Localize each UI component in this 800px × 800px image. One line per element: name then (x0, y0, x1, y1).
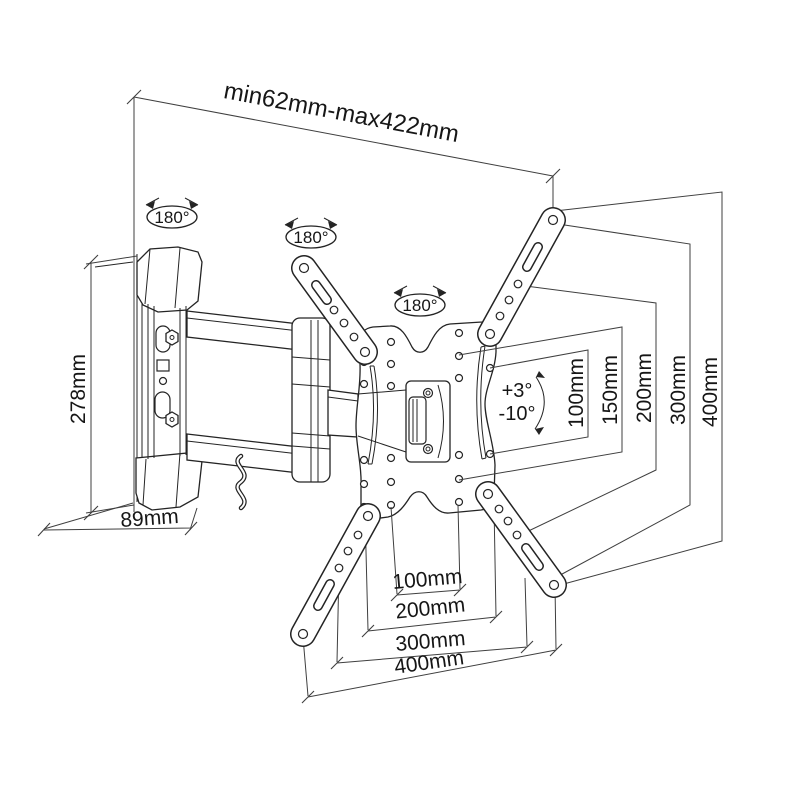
hinge-bolt-upper (166, 330, 178, 345)
hole (456, 353, 463, 360)
label-depth-89: 89mm (120, 505, 180, 532)
label-vesa-v-400: 400mm (699, 357, 722, 427)
hole (361, 481, 368, 488)
arm-hole (504, 517, 512, 525)
label-vesa-v-100: 100mm (565, 358, 588, 428)
arm-end-hole (361, 348, 370, 357)
hole (456, 330, 463, 337)
label-rotation-wall: 180° (154, 208, 189, 227)
arm-hole (514, 280, 522, 288)
arm-end-hole (484, 490, 493, 499)
extension-arm-lower-left (299, 512, 373, 639)
wall-plate-assembly (95, 247, 202, 510)
hole (388, 383, 395, 390)
arm-hole (344, 547, 352, 555)
arm-hole (496, 312, 504, 320)
label-height-278: 278mm (67, 354, 90, 424)
height-dimension-line (86, 256, 137, 513)
hole (388, 479, 395, 486)
arm-hole (330, 306, 338, 314)
tilt-arrowhead-down (535, 427, 544, 435)
hole (361, 457, 368, 464)
articulating-arm (187, 311, 358, 508)
label-vesa-h-100: 100mm (392, 565, 464, 594)
arm-end-hole (486, 330, 495, 339)
hole (361, 381, 368, 388)
bracket-screw-top (424, 389, 433, 398)
arm-lower-bar (187, 434, 299, 473)
rail-hole (160, 378, 167, 385)
label-vesa-h-200: 200mm (394, 593, 466, 623)
bracket-screw-bottom (424, 445, 433, 454)
arm-hole (354, 531, 362, 539)
extension-arm-upper-right (486, 216, 558, 339)
label-rotation-elbow: 180° (293, 228, 328, 247)
hinge-bolt-lower (166, 412, 178, 427)
wall-corner-line (95, 262, 133, 267)
arm-end-hole (300, 264, 309, 273)
arm-end-hole (299, 630, 308, 639)
label-tilt-down: -10° (499, 403, 536, 425)
hole (456, 499, 463, 506)
label-vesa-v-300: 300mm (667, 355, 690, 425)
arm-end-hole (364, 512, 373, 521)
hole (456, 476, 463, 483)
hole (456, 375, 463, 382)
hole (388, 339, 395, 346)
arm-end-hole (550, 581, 559, 590)
tilt-arrowhead-up (536, 371, 545, 378)
rail-square-hole (157, 360, 169, 371)
hole (388, 361, 395, 368)
elbow-link (328, 390, 358, 437)
arm-hole (513, 531, 521, 539)
tilt-marker (535, 371, 545, 435)
label-rotation-plate: 180° (402, 296, 437, 315)
arm-hole (350, 333, 358, 341)
arm-hole (340, 319, 348, 327)
arm-upper-bar (187, 311, 299, 350)
label-vesa-v-150: 150mm (599, 355, 622, 425)
tv-mount-technical-drawing: min62mm-max422mm 180° 180° 180° +3° -10°… (0, 0, 800, 800)
arm-hole (505, 296, 513, 304)
hole (388, 455, 395, 462)
arm-hole (495, 505, 503, 513)
arm-hole (335, 564, 343, 572)
label-tilt-up: +3° (502, 380, 533, 402)
arm-end-hole (549, 216, 558, 225)
label-top-range: min62mm-max422mm (222, 77, 462, 148)
hole (456, 452, 463, 459)
label-vesa-v-200: 200mm (633, 353, 656, 423)
tilt-arc (535, 377, 544, 429)
